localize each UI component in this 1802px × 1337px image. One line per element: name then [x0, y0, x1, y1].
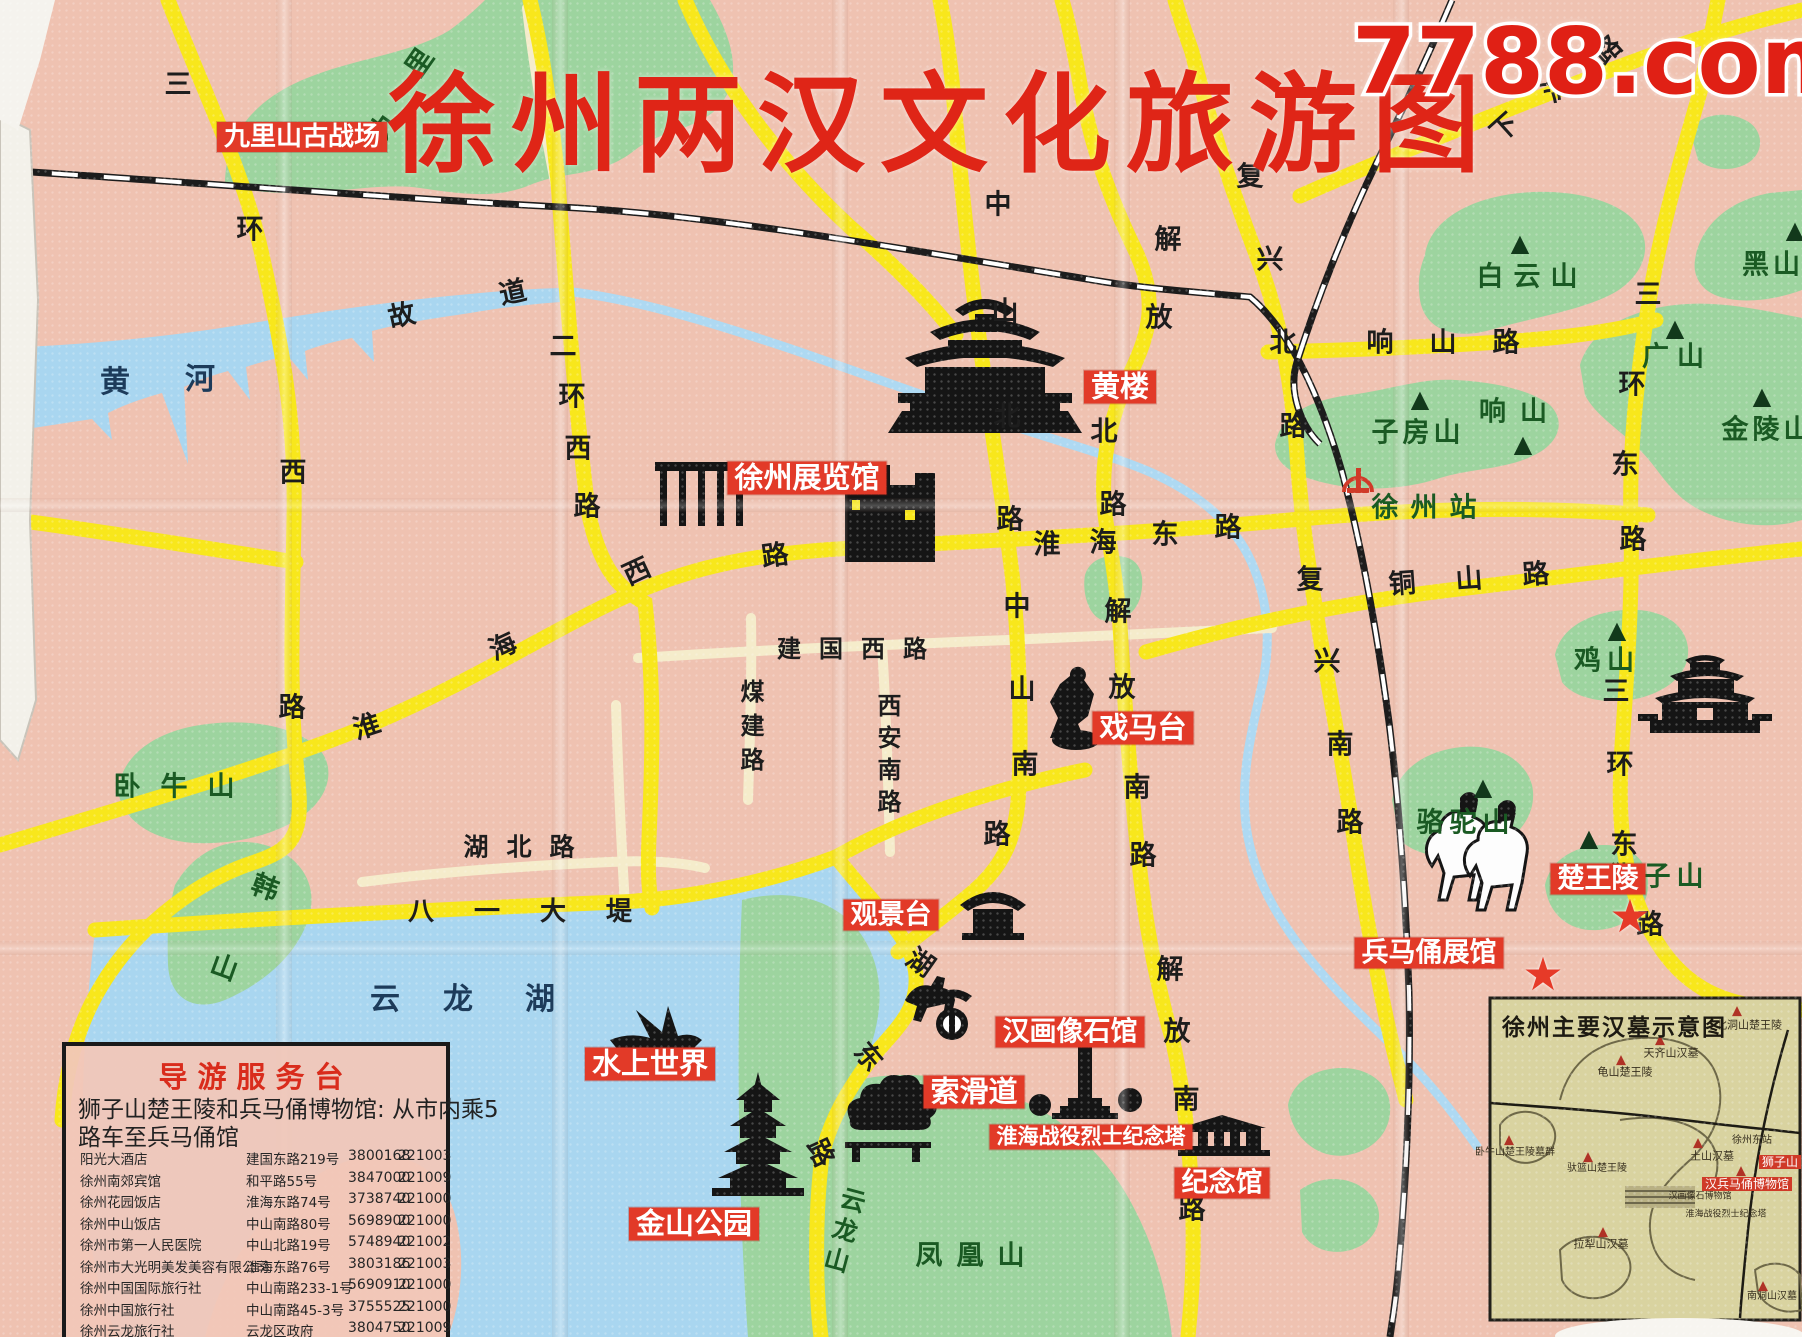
hotel-name: 徐州中国国际旅行社 — [80, 1277, 202, 1297]
road-label: 北 — [994, 404, 1021, 431]
inset-poi-label: 汉兵马俑博物馆 — [1702, 1177, 1792, 1191]
poi-jinshan-park: 金山公园 — [629, 1208, 759, 1241]
road-label: 路 — [1215, 515, 1242, 542]
road-label: 西 — [280, 460, 307, 487]
place-label: 鸡山 — [1574, 648, 1640, 675]
road-label: 路 — [1337, 810, 1364, 837]
road-label: 路 — [574, 494, 601, 521]
place-label: 卧牛山 — [114, 774, 255, 801]
place-label: 金陵山 — [1722, 417, 1802, 444]
peak-icon: ▲ — [1666, 316, 1684, 340]
road-label: 湖北路 — [463, 835, 592, 860]
peak-icon: ▲ — [1411, 387, 1429, 411]
place-label: 黑山 — [1742, 252, 1802, 279]
inset-peak-icon: ▲ — [1736, 1165, 1746, 1178]
road-label: 兴 — [1257, 247, 1284, 274]
guide-box-row: 徐州中国国际旅行社中山南路233-1号5690910221000 — [78, 1275, 442, 1297]
road-label: 煤建路 — [738, 679, 762, 781]
place-label: 响山 — [1479, 399, 1561, 426]
road-label: 路 — [1280, 414, 1307, 441]
inset-peak-icon: ▲ — [1616, 1054, 1626, 1067]
hotel-name: 阳光大酒店 — [80, 1148, 148, 1168]
hotel-postal-code: 221000 — [398, 1277, 451, 1293]
hotel-address: 中山南路80号 — [246, 1213, 331, 1233]
poi-water-world: 水上世界 — [585, 1048, 715, 1081]
road-label: 路 — [1130, 843, 1157, 870]
hotel-name: 徐州南郊宾馆 — [80, 1170, 161, 1190]
poi-terracotta-museum: 兵马俑展馆 — [1355, 938, 1504, 969]
road-label: 解 — [1155, 227, 1182, 254]
guide-box-row: 徐州花园饭店淮海东路74号3738740221000 — [78, 1189, 442, 1211]
guide-box-row: 阳光大酒店建国东路219号3800168221003 — [78, 1146, 442, 1168]
peak-icon: ▲ — [1786, 218, 1802, 242]
road-label: 东 — [849, 1038, 887, 1076]
hotel-address: 淮海东路74号 — [246, 1191, 331, 1211]
water-label: 龙 — [443, 985, 473, 1015]
road-label: 西安南路 — [875, 693, 899, 821]
road-label: 放 — [1109, 675, 1136, 702]
road-label: 东 — [1152, 522, 1179, 549]
peak-icon: ▲ — [1580, 826, 1598, 850]
hotel-name: 徐州市大光明美发美容有限公司 — [80, 1256, 269, 1276]
inset-label: 驮篮山楚王陵 — [1567, 1164, 1627, 1174]
inset-label: 土山汉墓 — [1690, 1151, 1734, 1162]
guide-box-row: 徐州中山饭店中山南路80号5698900221000 — [78, 1211, 442, 1233]
road-label: 路 — [984, 822, 1011, 849]
place-label: 白云山 — [1477, 264, 1588, 291]
hotel-postal-code: 221003 — [398, 1256, 451, 1272]
hotel-postal-code: 221000 — [398, 1299, 451, 1315]
watermark: 7788.com — [1352, 8, 1802, 115]
road-label: 环 — [1607, 752, 1634, 779]
road-label: 山 — [992, 299, 1019, 326]
place-label: 韩 — [248, 871, 283, 906]
hotel-postal-code: 221000 — [398, 1191, 451, 1207]
inset-peak-icon: ▲ — [1598, 1226, 1608, 1239]
place-label: 子房山 — [1372, 420, 1465, 447]
hotel-address: 淮海东路76号 — [246, 1256, 331, 1276]
place-label: 广山 — [1642, 344, 1712, 371]
road-label: 故 — [386, 300, 418, 332]
road-label: 南 — [1124, 775, 1151, 802]
guide-box-row: 徐州云龙旅行社云龙区政府3804750221009 — [78, 1318, 442, 1337]
inset-peak-icon: ▲ — [1758, 1280, 1768, 1293]
inset-peak-icon: ▲ — [1583, 1151, 1593, 1164]
road-label: 路 — [1100, 492, 1127, 519]
road-label: 路 — [802, 1135, 838, 1171]
road-label: 淮 — [1034, 532, 1061, 559]
road-label: 南 — [1173, 1087, 1200, 1114]
inset-label: 卧牛山楚王陵墓群 — [1475, 1148, 1555, 1158]
road-label: 八一大堤 — [408, 899, 672, 925]
road-label: 路 — [760, 541, 790, 571]
hotel-name: 徐州花园饭店 — [80, 1191, 161, 1211]
peak-icon: ▲ — [1753, 384, 1771, 408]
hotel-postal-code: 221003 — [398, 1148, 451, 1164]
hotel-name: 徐州云龙旅行社 — [80, 1320, 175, 1337]
road-label: 东 — [1612, 452, 1639, 479]
poi-jiulishan-battlefield: 九里山古战场 — [217, 122, 387, 152]
road-label: 路 — [1620, 527, 1647, 554]
water-label: 河 — [185, 365, 215, 395]
road-label: 道 — [497, 277, 529, 309]
road-label: 响山路 — [1367, 330, 1556, 357]
road-label: 淮 — [350, 710, 384, 744]
road-label: 解 — [1105, 599, 1132, 626]
road-label: 西 — [619, 554, 655, 590]
inset-label: 龟山楚王陵 — [1598, 1067, 1653, 1078]
poi-huanglou: 黄楼 — [1084, 371, 1156, 404]
hotel-name: 徐州市第一人民医院 — [80, 1234, 202, 1254]
road-label: 海 — [485, 629, 521, 665]
road-label: 中 — [1004, 594, 1031, 621]
road-label: 建国西路 — [777, 637, 945, 661]
road-label: 放 — [1164, 1019, 1191, 1046]
guide-box-row: 徐州市大光明美发美容有限公司淮海东路76号3803186221003 — [78, 1254, 442, 1276]
xuzhou-station-label: 徐州站 — [1372, 495, 1489, 522]
road-label: 复 — [1297, 567, 1324, 594]
star-icon: ★ — [1609, 893, 1650, 939]
hotel-name: 徐州中山饭店 — [80, 1213, 161, 1233]
road-label: 西 — [565, 436, 592, 463]
road-label: 山 — [1009, 677, 1036, 704]
guide-box-row: 徐州中国旅行社中山南路45-3号3755525221000 — [78, 1297, 442, 1319]
road-label: 路 — [279, 695, 306, 722]
inset-label: 徐州东站 — [1732, 1136, 1772, 1146]
inset-map-title: 徐州主要汉墓示意图 — [1502, 1008, 1727, 1042]
place-label: 云龙山 — [819, 1184, 867, 1280]
road-label: 海 — [1090, 530, 1117, 557]
hotel-address: 中山北路19号 — [246, 1234, 331, 1254]
inset-label: 汉画像石博物馆 — [1668, 1193, 1731, 1202]
road-label: 南 — [1327, 732, 1354, 759]
poi-ximatai: 戏马台 — [1092, 712, 1193, 745]
peak-icon: ▲ — [1511, 231, 1529, 255]
star-icon: ★ — [1522, 951, 1563, 997]
poi-memorial-hall: 纪念馆 — [1175, 1168, 1270, 1199]
place-label: 凤凰山 — [916, 1243, 1039, 1270]
guide-service-box: 导游服务台 狮子山楚王陵和兵马俑博物馆: 从市内乘5 路车至兵马俑馆 阳光大酒店… — [62, 1042, 450, 1337]
poi-viewing-platform: 观景台 — [844, 900, 939, 931]
guide-box-row: 徐州市第一人民医院中山北路19号5748940221002 — [78, 1232, 442, 1254]
water-label: 湖 — [525, 985, 555, 1015]
road-label: 三 — [1603, 679, 1630, 706]
water-label: 黄 — [100, 368, 130, 398]
road-label: 环 — [1619, 372, 1646, 399]
road-label: 解 — [1157, 957, 1184, 984]
road-label: 三 — [1635, 282, 1662, 309]
hotel-address: 建国东路219号 — [246, 1148, 339, 1168]
road-label: 湖 — [901, 944, 939, 982]
place-label: 骆驼山 — [1417, 810, 1516, 837]
road-label: 北 — [1270, 330, 1297, 357]
road-label: 南 — [1012, 752, 1039, 779]
hotel-postal-code: 221000 — [398, 1213, 451, 1229]
inset-label: 南洞山汉墓 — [1747, 1292, 1797, 1302]
road-label: 铜山路 — [1388, 558, 1590, 599]
road-label: 二 — [550, 334, 577, 361]
hotel-address: 中山南路233-1号 — [246, 1277, 353, 1297]
road-label: 路 — [997, 507, 1024, 534]
hotel-address: 和平路55号 — [246, 1170, 317, 1190]
hotel-postal-code: 221002 — [398, 1234, 451, 1250]
inset-label: 天齐山汉墓 — [1644, 1048, 1699, 1059]
road-label: 环 — [237, 217, 264, 244]
hotel-address: 中山南路45-3号 — [246, 1299, 344, 1319]
road-label: 中 — [985, 192, 1012, 219]
inset-peak-icon: ▲ — [1693, 1137, 1703, 1150]
inset-label: 淮海战役烈士纪念塔 — [1685, 1211, 1766, 1220]
scanned-tourist-map: 三环西路二环西路故道淮海西路建国西路煤建路西安南路中山北路中山南路解放北路解放南… — [0, 0, 1802, 1337]
hotel-name: 徐州中国旅行社 — [80, 1299, 175, 1319]
water-label: 云 — [370, 985, 400, 1015]
peak-icon: ▲ — [1608, 618, 1626, 642]
place-label: 山 — [207, 951, 242, 986]
guide-box-row: 徐州南郊宾馆和平路55号3847000221009 — [78, 1168, 442, 1190]
hotel-postal-code: 221009 — [398, 1170, 451, 1186]
inset-label: 拉犁山汉墓 — [1574, 1239, 1629, 1250]
road-label: 北 — [1091, 419, 1118, 446]
road-label: 三 — [165, 72, 192, 99]
poi-cableway: 索滑道 — [923, 1076, 1024, 1109]
peak-icon: ▲ — [1514, 432, 1532, 456]
inset-peak-icon: ▲ — [1732, 1005, 1742, 1018]
hotel-address: 云龙区政府 — [246, 1320, 314, 1337]
map-title: 徐州两汉文化旅游图 — [388, 38, 1495, 194]
hotel-postal-code: 221009 — [398, 1320, 451, 1336]
inset-peak-icon: ▲ — [1504, 1134, 1514, 1147]
poi-stone-relief-museum: 汉画像石馆 — [996, 1017, 1145, 1048]
guide-box-rows: 阳光大酒店建国东路219号3800168221003徐州南郊宾馆和平路55号38… — [78, 1146, 442, 1337]
peak-icon: ▲ — [1474, 775, 1492, 799]
poi-exhibition-hall: 徐州展览馆 — [727, 462, 886, 495]
inset-poi-label: 狮子山 — [1759, 1155, 1801, 1169]
poi-huaihai-memorial-tower: 淮海战役烈士纪念塔 — [990, 1125, 1193, 1150]
road-label: 路 — [1179, 1197, 1206, 1224]
road-label: 放 — [1146, 305, 1173, 332]
road-label: 环 — [559, 384, 586, 411]
road-label: 兴 — [1314, 649, 1341, 676]
road-label: 东 — [1611, 832, 1638, 859]
